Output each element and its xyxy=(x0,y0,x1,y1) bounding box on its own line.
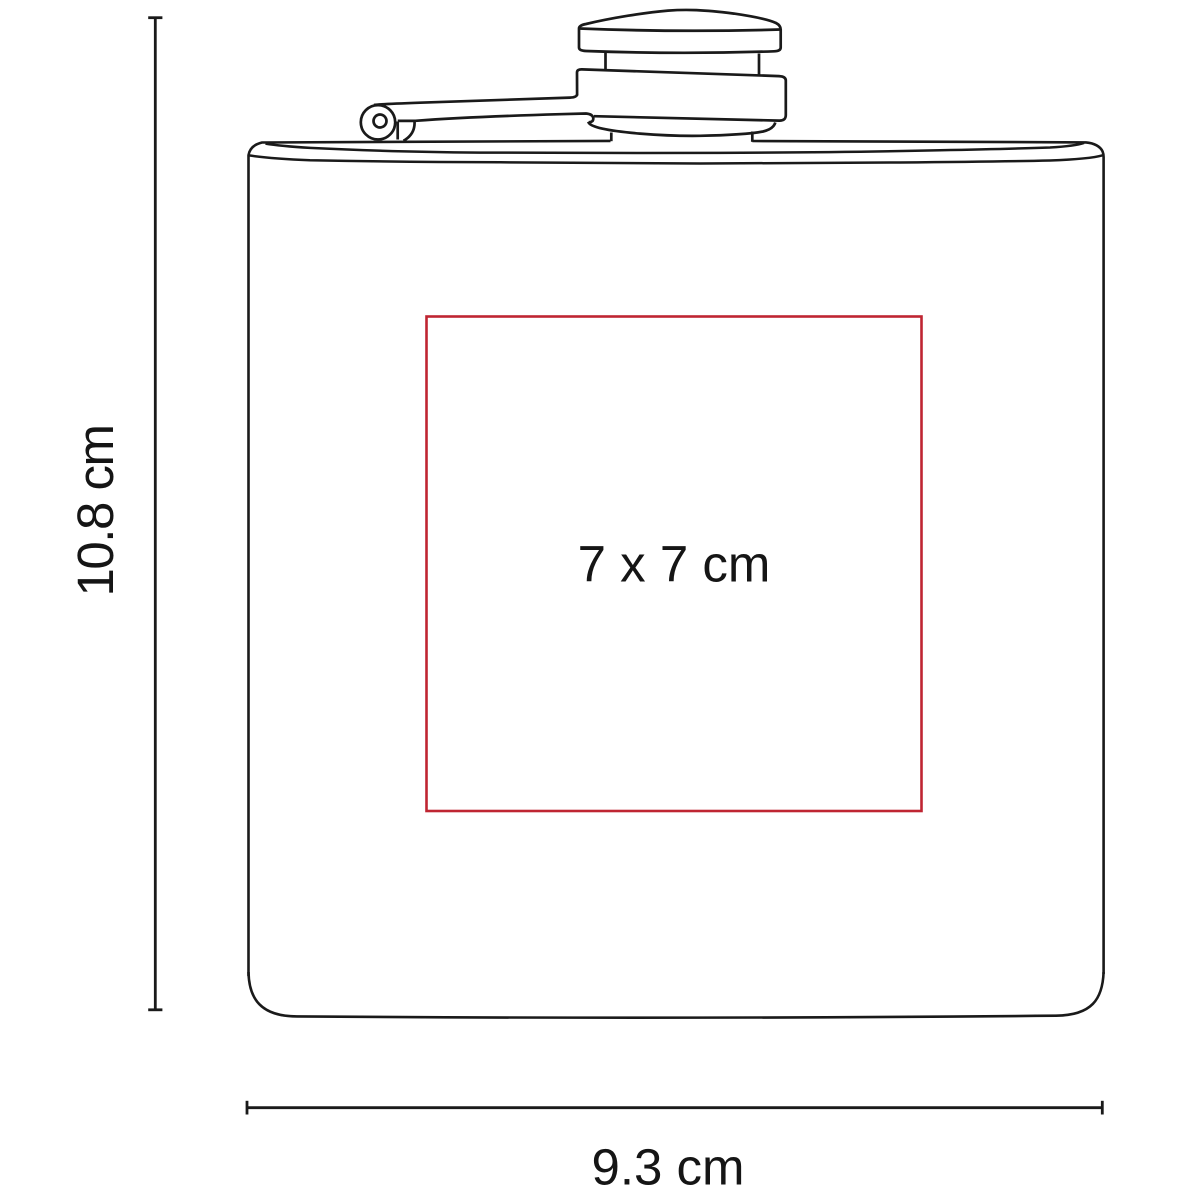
svg-text:9.3 cm: 9.3 cm xyxy=(591,1139,744,1196)
svg-text:7 x 7 cm: 7 x 7 cm xyxy=(578,536,771,593)
svg-text:10.8 cm: 10.8 cm xyxy=(67,426,124,597)
